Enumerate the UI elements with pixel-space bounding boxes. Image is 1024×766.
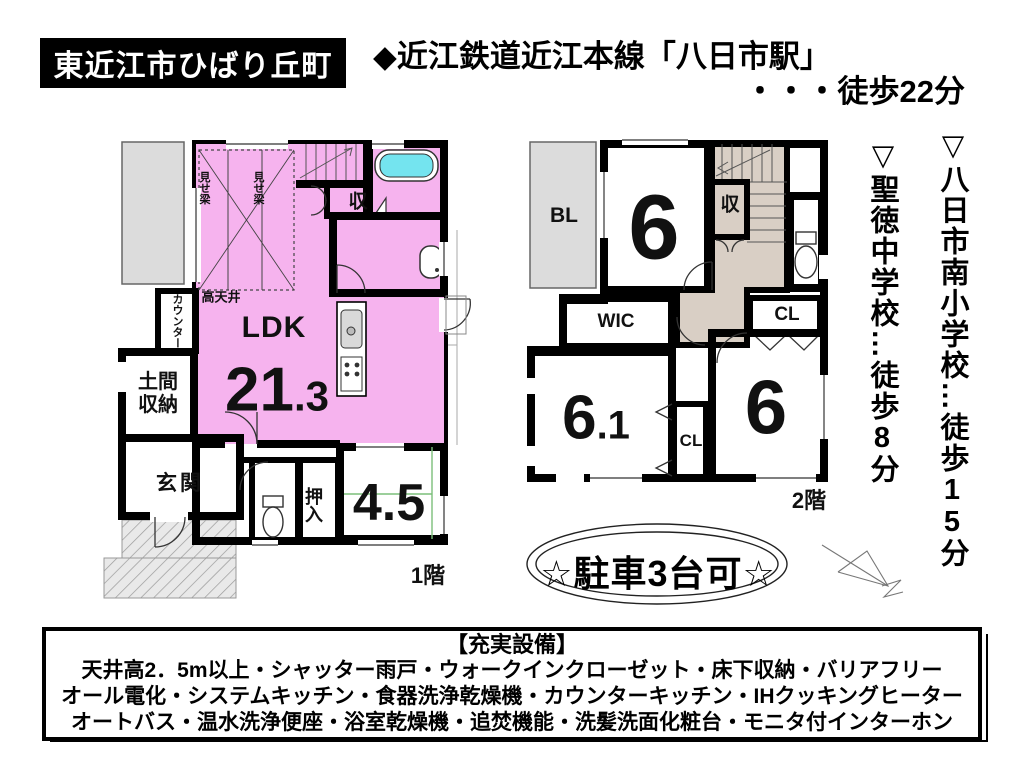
- oshiire-label: 押入: [300, 487, 326, 523]
- entrance-label: 玄関: [156, 467, 204, 497]
- counter-label: カウンター: [169, 294, 185, 349]
- equipment-line-3: オートバス・温水洗浄便座・浴室乾燥機・追焚機能・洗髪洗面化粧台・モニタ付インター…: [46, 710, 978, 736]
- ldk-size-decimal: .3: [294, 373, 329, 421]
- washroom-1f: [333, 216, 444, 293]
- beams-area-1f: [199, 150, 294, 290]
- bath-1f: [369, 144, 444, 216]
- equipment-box: 【充実設備】 天井高2．5m以上・シャッター雨戸・ウォークインクローゼット・床下…: [42, 627, 982, 741]
- cl-mid-label: CL: [680, 431, 703, 451]
- wic-label: WIC: [598, 311, 635, 333]
- equipment-line-1: 天井高2．5m以上・シャッター雨戸・ウォークインクローゼット・床下収納・バリアフ…: [46, 658, 978, 684]
- junior-high-text: ▽聖徳中学校…徒歩: [866, 138, 898, 422]
- equipment-line-2: オール電化・システムキッチン・食器洗浄乾燥機・カウンターキッチン・IHクッキング…: [46, 684, 978, 710]
- room-b-size: 6.1: [562, 383, 630, 454]
- ldk-size-main: 21: [225, 355, 294, 426]
- station-walk-time: ・・・徒歩22分: [600, 66, 965, 111]
- closet-2f-label: 収: [720, 190, 739, 217]
- ldk-size: 21.3: [225, 355, 329, 426]
- junior-high-minutes: 8: [866, 422, 898, 454]
- exposed-beam-label-1: 見せ梁: [196, 172, 212, 205]
- toilet-1f: [252, 460, 298, 541]
- tatami-room-size: 4.5: [353, 473, 425, 533]
- room-b-size-main: 6: [562, 383, 596, 454]
- junior-high-suffix: 分: [866, 454, 898, 485]
- elementary-school-access: ▽八日市南小学校…徒歩15分: [931, 128, 973, 569]
- elementary-school-minutes: 15: [936, 474, 968, 538]
- room-c-size: 6: [745, 365, 787, 452]
- floor1-tag: 1階: [411, 558, 445, 590]
- equipment-box-shadow-right: [986, 634, 988, 740]
- room-a-size: 6: [628, 176, 679, 281]
- junior-high-access: ▽聖徳中学校…徒歩8分: [861, 138, 903, 485]
- elementary-school-text: ▽八日市南小学校…徒歩: [936, 128, 968, 474]
- elementary-school-suffix: 分: [936, 538, 968, 569]
- cl-top-label: CL: [774, 304, 799, 326]
- high-ceiling-label: 高天井: [201, 287, 240, 306]
- exposed-beam-label-2: 見せ梁: [250, 172, 266, 205]
- closet-1f-label: 収: [348, 187, 367, 214]
- kitchen-unit-1f: [337, 302, 366, 396]
- balcony-label: BL: [550, 204, 578, 228]
- room-b-size-decimal: .1: [597, 404, 630, 449]
- location-badge: 東近江市ひばり丘町: [40, 38, 346, 88]
- doma-storage-label: 土間収納: [135, 371, 181, 417]
- toilet-2f: [790, 196, 822, 288]
- floor2-tag: 2階: [792, 483, 826, 515]
- ldk-label: LDK: [242, 311, 307, 345]
- north-arrow-icon: [822, 545, 903, 597]
- equipment-title: 【充実設備】: [46, 632, 978, 658]
- parking-callout: ☆駐車3台可☆: [527, 545, 789, 597]
